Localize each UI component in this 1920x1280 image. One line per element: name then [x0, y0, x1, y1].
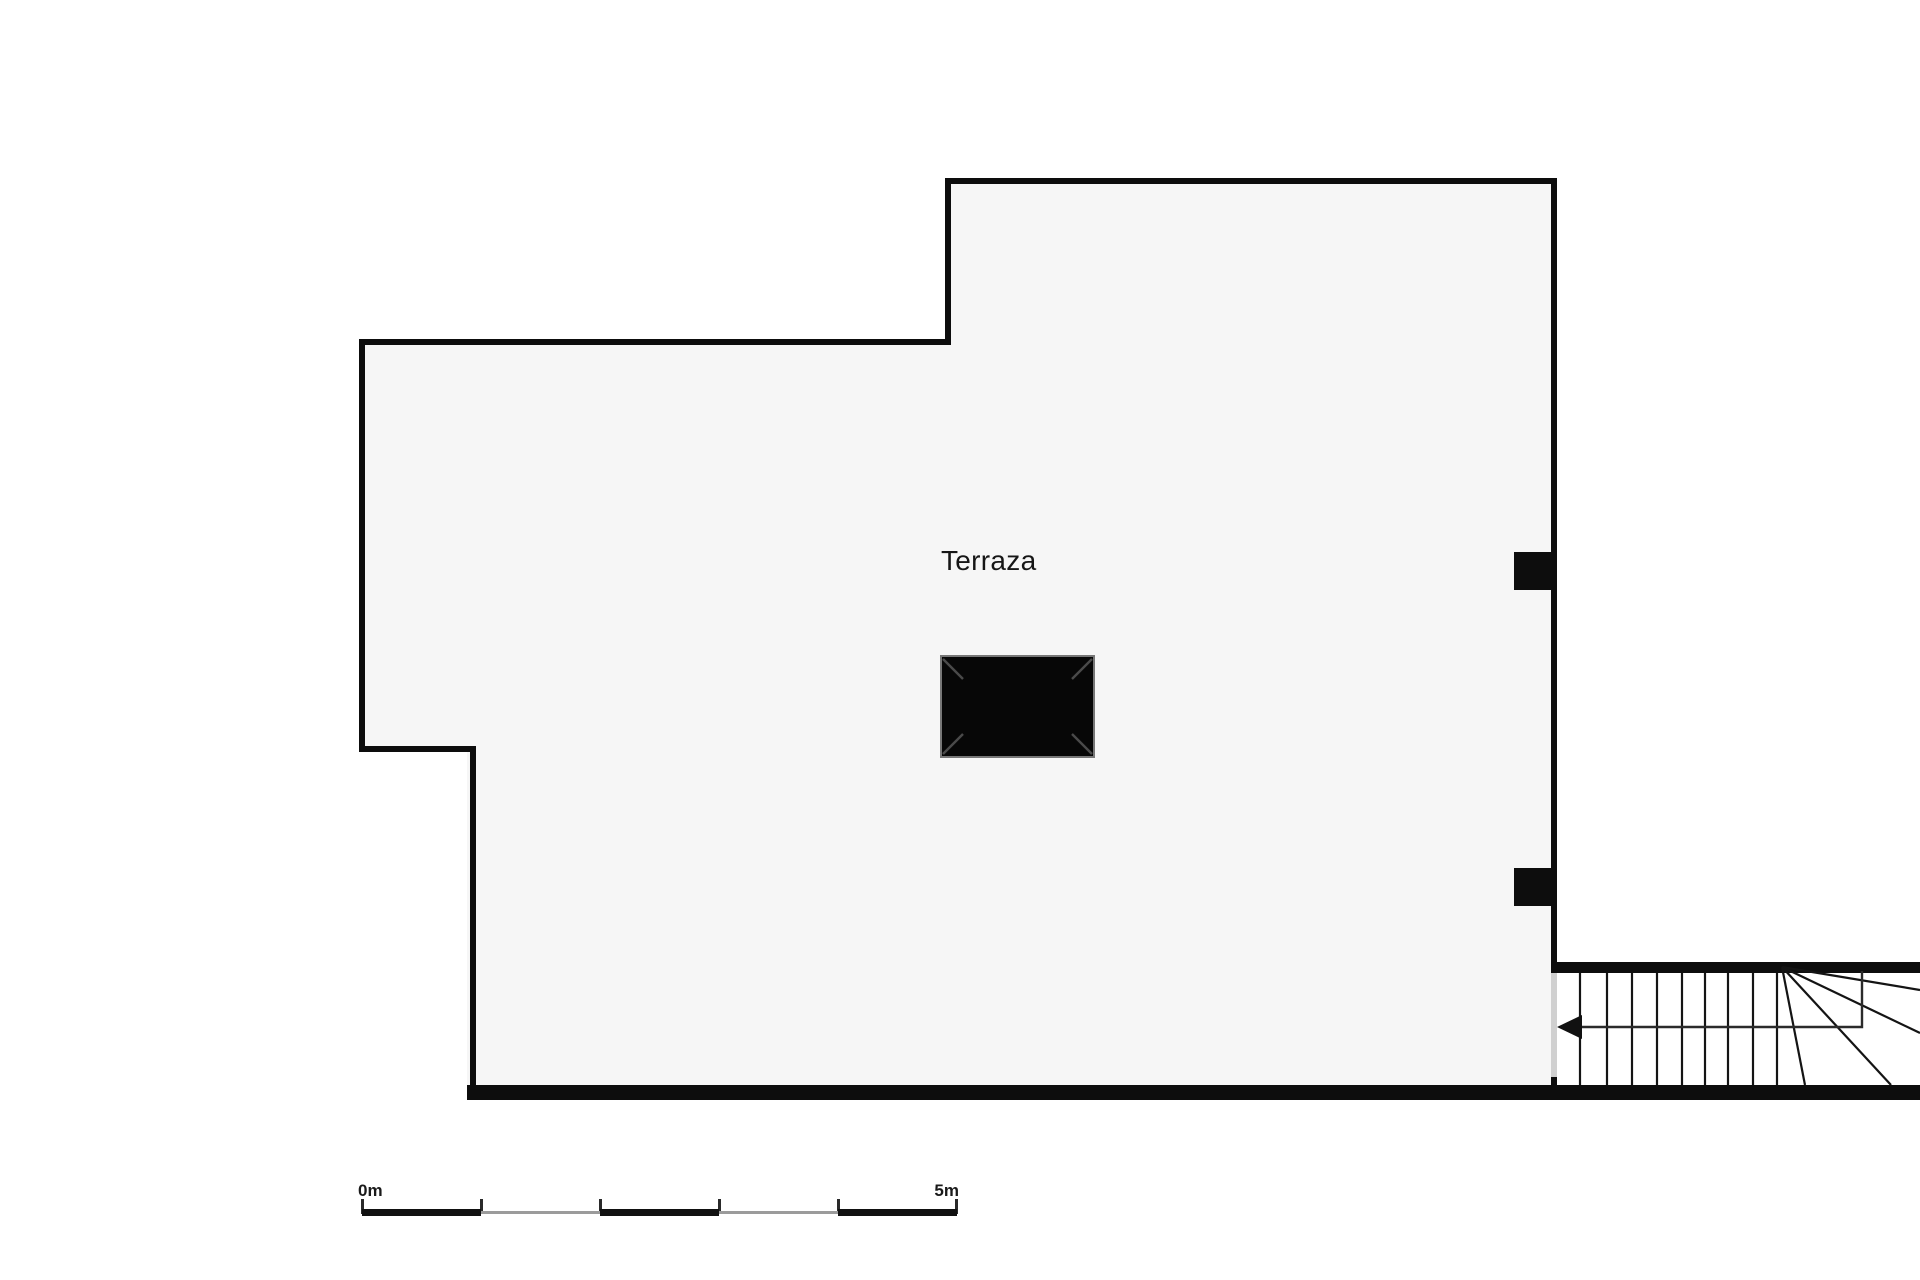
wall-step-horizontal [359, 746, 476, 752]
stair-winder-line [1782, 967, 1805, 1085]
wall-top-left-section [359, 339, 951, 345]
scale-segment-solid [362, 1209, 481, 1216]
stair-winder-fan-lines [1782, 967, 1920, 1085]
scale-start-label: 0m [358, 1182, 383, 1199]
scale-segment-solid [838, 1209, 957, 1216]
wall-top-upper-section [945, 178, 1557, 184]
chimney-block [940, 655, 1095, 758]
stair-winder-line [1782, 967, 1891, 1085]
scale-segment-line [481, 1211, 600, 1214]
wall-stair-top [1551, 962, 1920, 973]
scale-end-label: 5m [934, 1182, 959, 1199]
wall-bottom [467, 1085, 1920, 1100]
wall-column-lower [1514, 868, 1554, 906]
stair-tread-lines [1580, 973, 1777, 1085]
room-label: Terraza [941, 547, 1036, 575]
wall-left [359, 339, 365, 752]
wall-vertical-connector [945, 178, 951, 345]
stair-direction-arrow-icon [1557, 1015, 1582, 1039]
floorplan-canvas: Terraza 0m 5m [0, 0, 1920, 1280]
wall-stub-below-opening [1551, 1077, 1557, 1085]
stair-winder-line [1782, 967, 1920, 1033]
wall-step-vertical [470, 746, 476, 1085]
door-opening-to-stairs [1551, 973, 1557, 1077]
stair-walk-line [1579, 971, 1862, 1027]
wall-column-upper [1514, 552, 1554, 590]
scale-segment-solid [600, 1209, 719, 1216]
scale-segment-line [719, 1211, 838, 1214]
